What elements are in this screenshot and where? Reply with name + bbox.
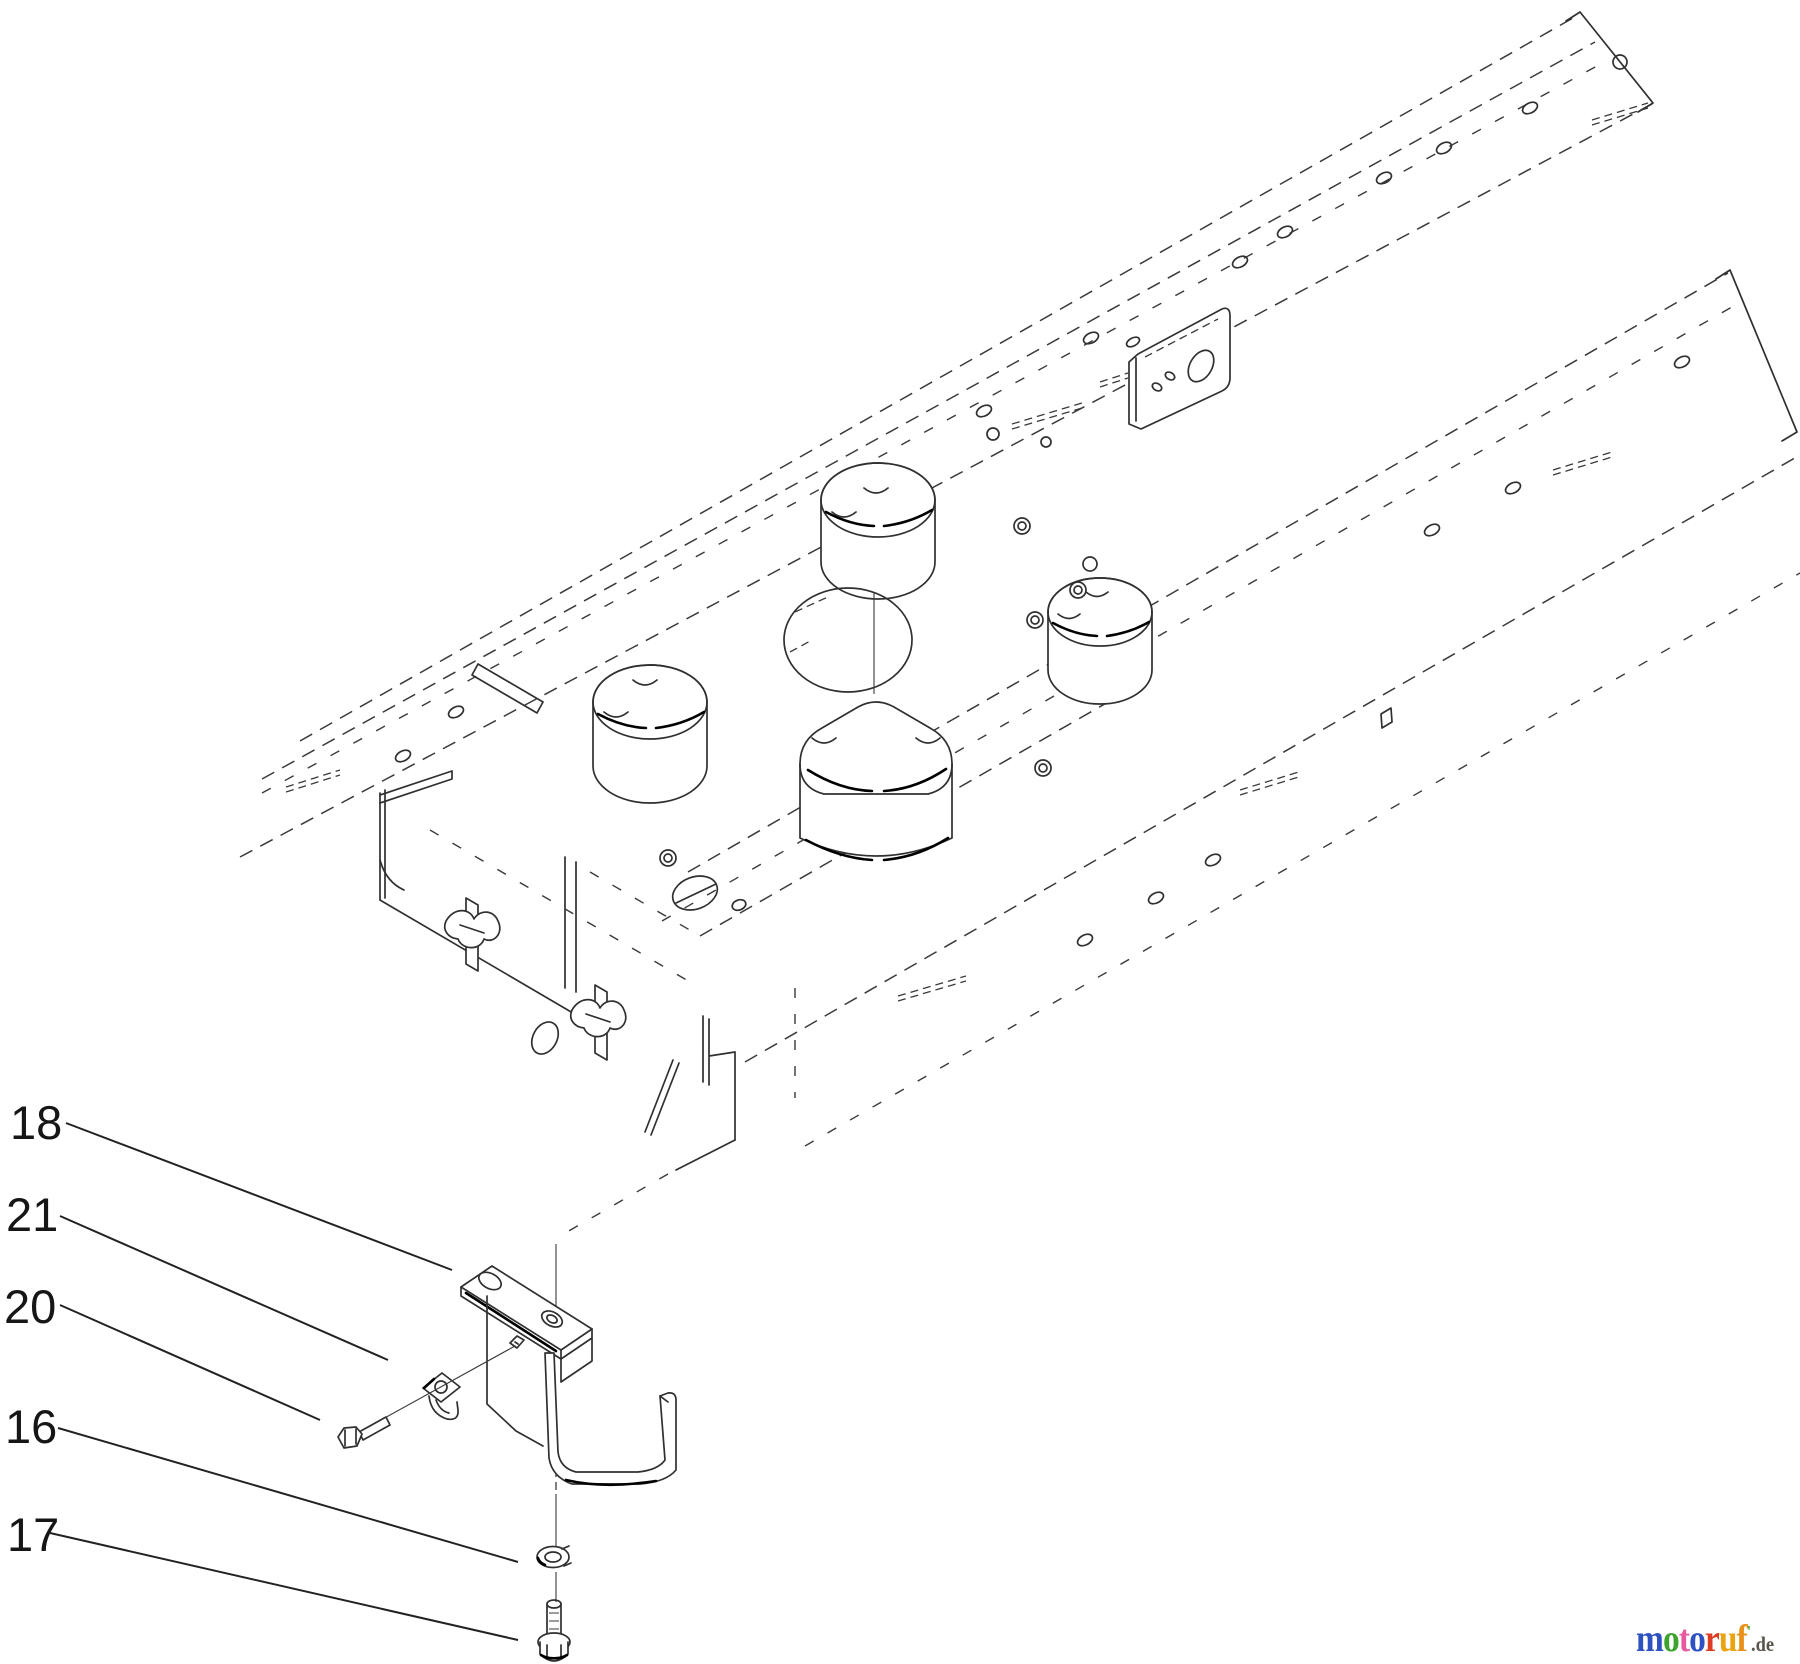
- logo-letter: o: [1689, 1618, 1705, 1660]
- logo-letter: o: [1663, 1618, 1679, 1660]
- callout-label-18: 18: [10, 1096, 62, 1149]
- engine-mount-left: [593, 665, 707, 803]
- logo-letter: r: [1705, 1618, 1719, 1660]
- logo-letter: f: [1737, 1618, 1747, 1660]
- callout-label-21: 21: [6, 1188, 58, 1241]
- logo-letter: m: [1636, 1618, 1663, 1660]
- engine-mount-front: [821, 463, 935, 599]
- logo-letter: u: [1719, 1618, 1737, 1660]
- parts-diagram-page: 18 21 20 16 17 motoruf'.de: [0, 0, 1800, 1664]
- logo-letter: t: [1679, 1618, 1689, 1660]
- callout-label-17: 17: [7, 1508, 59, 1561]
- callout-label-20: 20: [4, 1280, 56, 1333]
- logo-tld: .de: [1751, 1632, 1774, 1656]
- parts-diagram: 18 21 20 16 17: [0, 0, 1800, 1664]
- callout-label-16: 16: [5, 1400, 57, 1453]
- motoruf-logo[interactable]: motoruf'.de: [1636, 1620, 1774, 1658]
- engine-mount-right: [1048, 578, 1152, 704]
